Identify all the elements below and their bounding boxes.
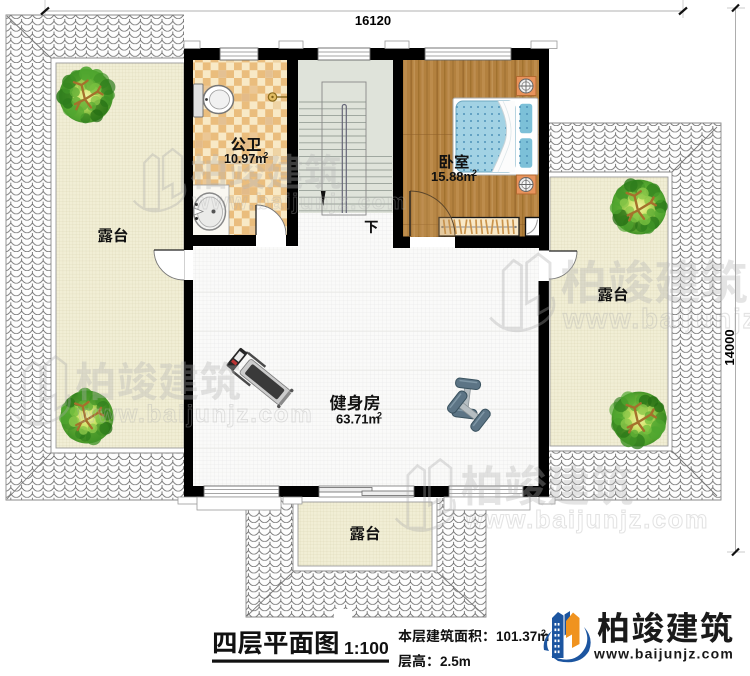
svg-text:14000: 14000 — [722, 329, 737, 365]
svg-text:2: 2 — [472, 168, 477, 178]
svg-text:2: 2 — [541, 628, 546, 638]
svg-text:16120: 16120 — [355, 13, 391, 28]
svg-text:2.5m: 2.5m — [440, 654, 471, 669]
svg-text:15.88m: 15.88m — [431, 169, 475, 184]
svg-text:10.97m: 10.97m — [224, 152, 266, 166]
svg-text:2: 2 — [377, 411, 382, 421]
svg-text:www.baijunjz.com: www.baijunjz.com — [593, 646, 734, 662]
svg-text:2: 2 — [264, 150, 269, 160]
svg-text:1:100: 1:100 — [344, 638, 389, 658]
svg-text:63.71m: 63.71m — [336, 412, 380, 427]
